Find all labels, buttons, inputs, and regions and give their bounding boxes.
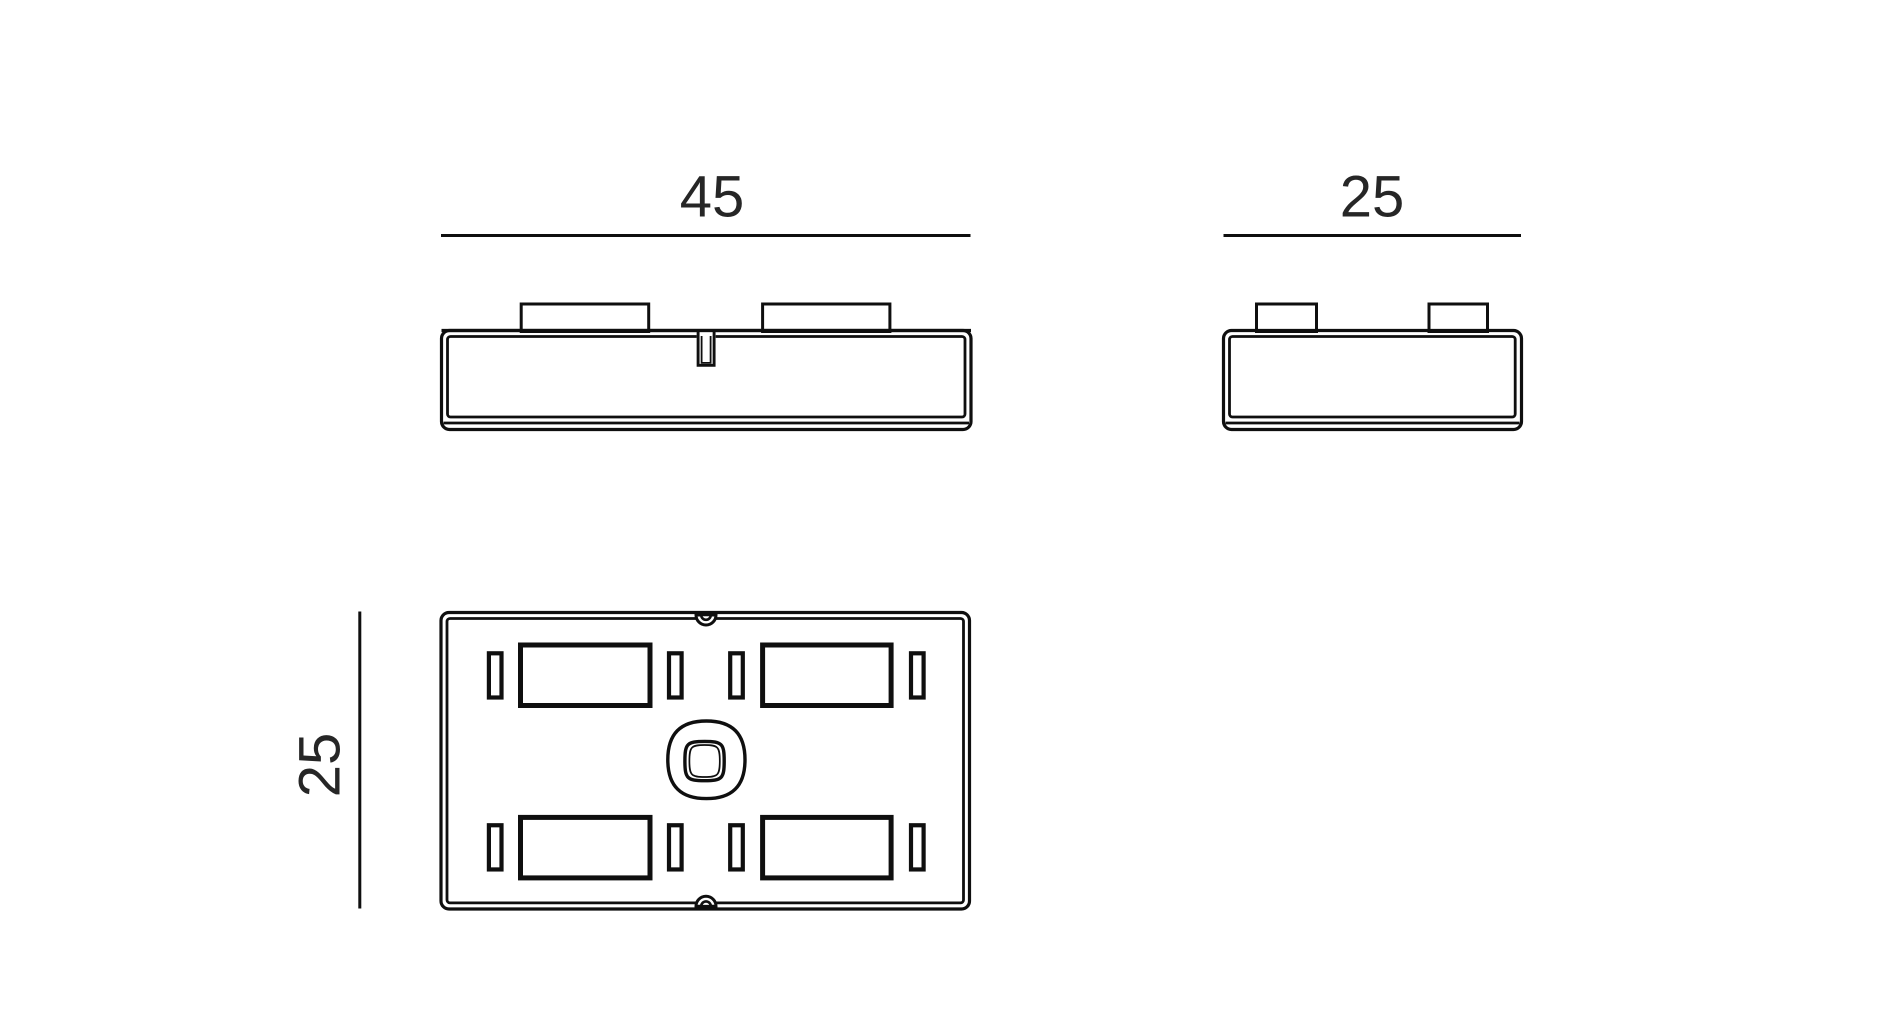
svg-text:45: 45 <box>680 165 745 230</box>
svg-text:25: 25 <box>288 733 353 798</box>
svg-text:25: 25 <box>1340 165 1405 230</box>
